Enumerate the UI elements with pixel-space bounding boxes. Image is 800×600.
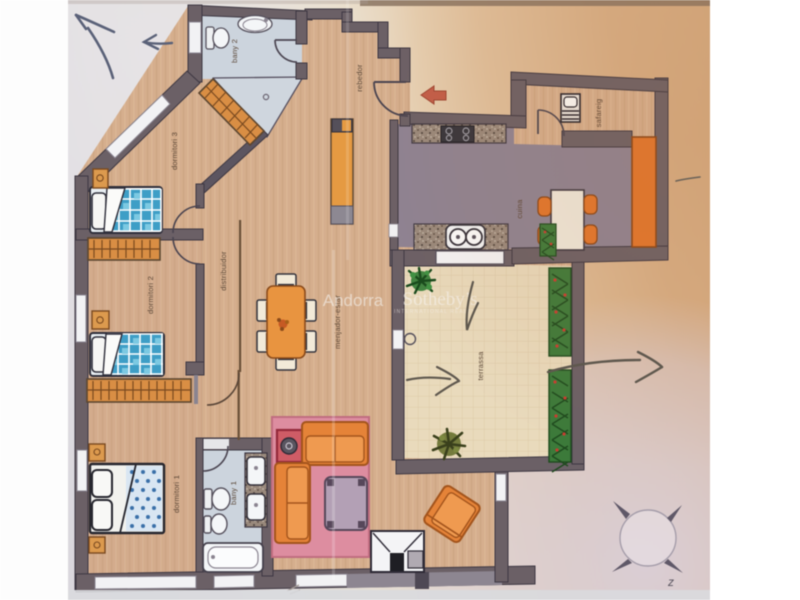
svg-text:Andorra: Andorra [323,291,384,310]
svg-text:distribuidor: distribuidor [219,251,228,291]
svg-text:dormitori 3: dormitori 3 [170,132,179,170]
svg-text:dormitori 2: dormitori 2 [146,276,155,314]
svg-text:bany 1: bany 1 [229,481,238,505]
svg-text:z: z [667,575,674,589]
svg-text:dormitori 1: dormitori 1 [172,475,181,513]
svg-text:rebedor: rebedor [355,64,364,92]
svg-text:bany 2: bany 2 [230,39,239,63]
